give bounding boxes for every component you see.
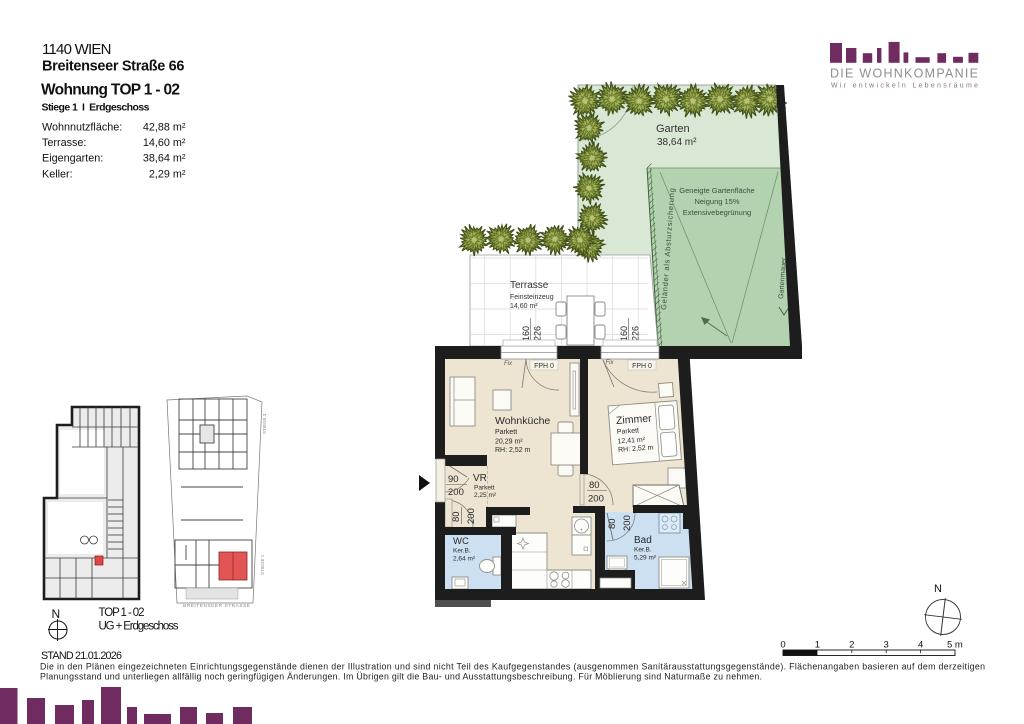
svg-text:Ker.B.: Ker.B. xyxy=(634,547,652,554)
svg-text:Terrasse: Terrasse xyxy=(510,280,549,291)
svg-text:80: 80 xyxy=(451,511,462,522)
svg-text:Eigengarten:: Eigengarten: xyxy=(42,153,103,165)
svg-text:42,88 m²: 42,88 m² xyxy=(143,121,186,133)
svg-text:Garten: Garten xyxy=(656,123,690,135)
svg-text:200: 200 xyxy=(588,494,604,505)
svg-text:80: 80 xyxy=(607,518,618,529)
svg-text:2,25 m²: 2,25 m² xyxy=(474,492,497,499)
svg-text:2,29 m²: 2,29 m² xyxy=(149,168,186,180)
svg-text:STIEGE 3: STIEGE 3 xyxy=(262,413,267,434)
svg-text:160: 160 xyxy=(619,326,629,341)
svg-text:DIE WOHNKOMPANIE: DIE WOHNKOMPANIE xyxy=(830,67,978,81)
svg-text:Extensivebegrünung: Extensivebegrünung xyxy=(683,208,751,217)
svg-text:UG + Erdgeschoss: UG + Erdgeschoss xyxy=(99,621,179,633)
svg-text:38,64 m²: 38,64 m² xyxy=(143,153,186,165)
svg-text:Zimmer: Zimmer xyxy=(616,412,653,426)
svg-text:0: 0 xyxy=(780,640,785,651)
svg-text:STAND 21.01.2026: STAND 21.01.2026 xyxy=(41,650,122,662)
svg-text:Feinsteinzeug: Feinsteinzeug xyxy=(510,294,554,301)
svg-text:Wohnung TOP 1 - 02: Wohnung TOP 1 - 02 xyxy=(41,82,180,99)
svg-text:FPH 0: FPH 0 xyxy=(632,363,652,370)
svg-text:FPH 0: FPH 0 xyxy=(534,363,554,370)
svg-text:80: 80 xyxy=(589,480,600,491)
svg-text:160: 160 xyxy=(521,326,531,341)
svg-text:226: 226 xyxy=(631,326,641,341)
svg-text:2: 2 xyxy=(849,640,854,651)
svg-text:Parkett: Parkett xyxy=(474,485,495,492)
svg-text:N: N xyxy=(934,583,942,595)
svg-text:Ker.B.: Ker.B. xyxy=(453,548,471,555)
svg-text:3: 3 xyxy=(884,640,889,651)
svg-text:Die in den Plänen eingezeichne: Die in den Plänen eingezeichneten Einric… xyxy=(40,661,985,671)
svg-text:38,64 m²: 38,64 m² xyxy=(657,137,697,148)
svg-text:Wir entwickeln Lebensräume: Wir entwickeln Lebensräume xyxy=(831,83,978,90)
svg-text:Parkett: Parkett xyxy=(495,429,517,436)
svg-text:14,60 m²: 14,60 m² xyxy=(510,303,538,310)
svg-text:N: N xyxy=(52,607,61,621)
svg-text:VR: VR xyxy=(473,473,487,484)
svg-text:226: 226 xyxy=(533,326,543,341)
svg-text:Terrasse:: Terrasse: xyxy=(42,137,86,149)
svg-text:Fix: Fix xyxy=(504,361,513,367)
svg-text:200: 200 xyxy=(448,487,464,498)
svg-text:BREITENSEER STRASSE: BREITENSEER STRASSE xyxy=(183,603,250,609)
svg-text:Fix: Fix xyxy=(606,360,615,366)
svg-text:14,60 m²: 14,60 m² xyxy=(143,137,186,149)
svg-text:2,64 m²: 2,64 m² xyxy=(453,556,476,563)
svg-text:Geneigte Gartenfläche: Geneigte Gartenfläche xyxy=(679,186,754,195)
svg-text:Planungsstand und unterliegen: Planungsstand und unterliegen allfällig … xyxy=(40,671,762,681)
svg-text:1140 WIEN: 1140 WIEN xyxy=(42,41,112,58)
svg-text:Wohnnutzfläche:: Wohnnutzfläche: xyxy=(42,121,122,133)
svg-text:WC: WC xyxy=(453,536,469,547)
svg-text:5,29 m²: 5,29 m² xyxy=(634,555,657,562)
svg-text:TOP 1 - 02: TOP 1 - 02 xyxy=(99,607,145,619)
svg-text:Wohnküche: Wohnküche xyxy=(495,415,550,427)
svg-text:Keller:: Keller: xyxy=(42,168,73,180)
svg-text:200: 200 xyxy=(622,515,633,531)
svg-text:4: 4 xyxy=(918,640,923,651)
svg-text:Stiege 1 I Erdgeschoss: Stiege 1 I Erdgeschoss xyxy=(42,102,150,114)
svg-text:90: 90 xyxy=(448,474,459,485)
svg-text:Bad: Bad xyxy=(634,535,652,546)
svg-text:5 m: 5 m xyxy=(947,640,963,651)
svg-text:STIEGE 1: STIEGE 1 xyxy=(260,554,265,575)
svg-text:20,29 m²: 20,29 m² xyxy=(495,439,523,446)
svg-text:Neigung 15%: Neigung 15% xyxy=(694,197,739,206)
svg-text:RH: 2,52 m: RH: 2,52 m xyxy=(495,447,531,454)
svg-text:200: 200 xyxy=(466,508,477,524)
svg-text:Breitenseer Straße 66: Breitenseer Straße 66 xyxy=(42,59,185,75)
svg-text:1: 1 xyxy=(815,640,820,651)
